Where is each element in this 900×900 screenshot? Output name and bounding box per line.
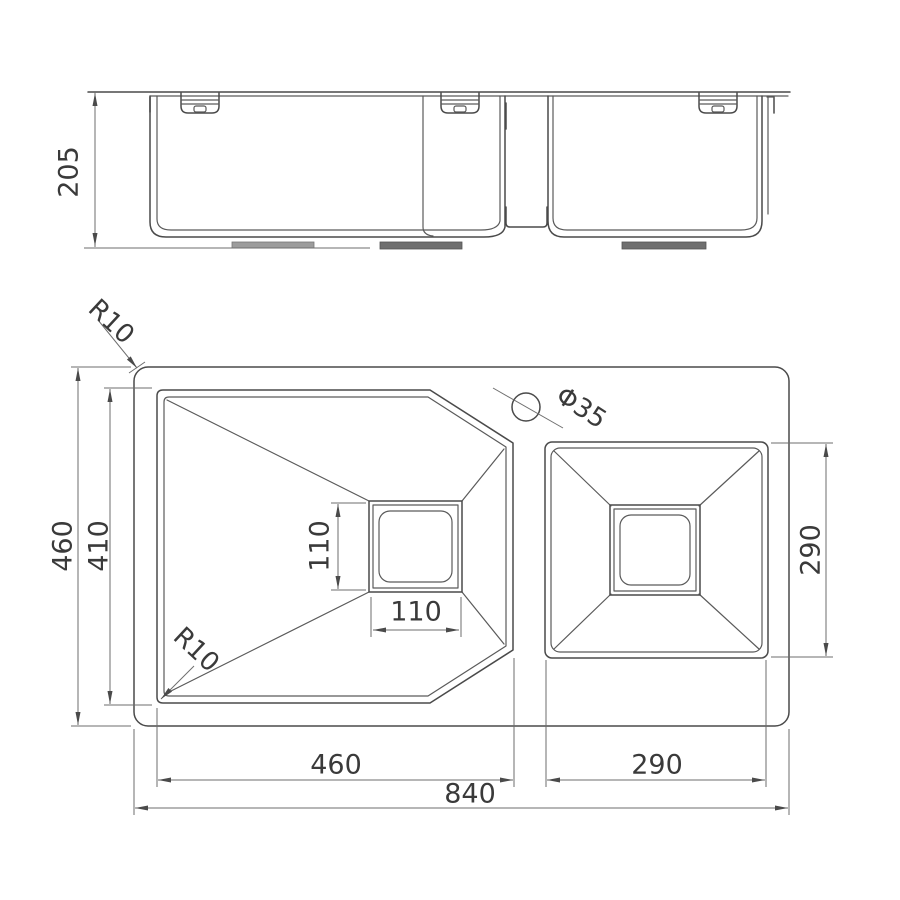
faucet-hole-diameter-label: Φ35 <box>550 381 611 435</box>
dim-second-bowl-depth: 290 <box>771 443 833 657</box>
dim-drain-width: 110 <box>371 597 461 638</box>
main-bowl-outer-profile <box>150 96 505 237</box>
second-bowl-diagonal-bl <box>554 594 611 649</box>
drain-pad-right <box>622 242 706 249</box>
dim-main-bowl-depth-label: 410 <box>84 520 115 572</box>
second-drain-inner <box>620 515 690 585</box>
dim-overall-width-label: 840 <box>444 779 496 810</box>
dim-second-bowl-width: 290 <box>546 660 766 787</box>
main-bowl-diagonal-tl <box>167 400 369 501</box>
main-bowl-diagonal-tr <box>462 449 504 501</box>
dim-overall-depth-label: 460 <box>48 520 79 572</box>
second-bowl-inner-profile <box>553 96 757 230</box>
sink-technical-drawing: 205 R10 Φ35 <box>0 0 900 900</box>
main-drain-inner <box>379 511 452 582</box>
divider-bridge <box>506 207 547 227</box>
dim-drain-depth-label: 110 <box>305 520 336 572</box>
second-bowl-outer-profile <box>548 96 762 237</box>
faucet-hole: Φ35 <box>493 381 612 435</box>
dim-side-height: 205 <box>54 92 371 248</box>
second-bowl-diagonal-tl <box>554 451 611 506</box>
second-bowl <box>545 442 768 658</box>
second-drain-mid <box>614 509 696 591</box>
plan-view: R10 Φ35 R10 <box>48 294 834 815</box>
dim-second-bowl-width-label: 290 <box>631 750 683 781</box>
main-drain-outer <box>369 501 462 592</box>
dim-main-bowl-width-label: 460 <box>310 750 362 781</box>
dim-second-bowl-depth-label: 290 <box>796 524 827 576</box>
main-bowl-chamfer-edge <box>423 96 433 236</box>
main-bowl-inner-profile <box>157 96 500 230</box>
outer-corner-radius-label: R10 <box>82 294 140 351</box>
second-bowl-diagonal-br <box>699 594 759 649</box>
dim-drain-depth: 110 <box>305 503 367 590</box>
callout-outer-radius: R10 <box>82 294 145 373</box>
drain-pad-left <box>232 242 314 248</box>
main-drain-mid <box>373 505 458 588</box>
side-elevation-view: 205 <box>54 92 791 249</box>
second-bowl-diagonal-tr <box>699 451 759 506</box>
dim-main-bowl-depth: 410 <box>84 388 153 705</box>
dim-overall-width: 840 <box>134 729 789 815</box>
bowl-corner-radius-label: R10 <box>167 622 225 679</box>
dim-drain-width-label: 110 <box>390 597 442 628</box>
dim-main-bowl-width: 460 <box>157 658 514 787</box>
dim-side-height-label: 205 <box>54 146 85 198</box>
drain-pad-center <box>380 242 462 249</box>
main-bowl-diagonal-br <box>462 592 504 644</box>
callout-bowl-radius: R10 <box>161 622 225 699</box>
